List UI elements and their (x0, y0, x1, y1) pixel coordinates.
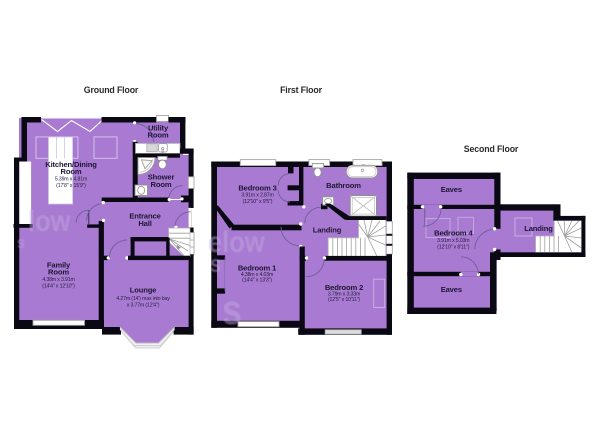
svg-text:Landing: Landing (524, 224, 553, 233)
svg-text:Hall: Hall (138, 219, 151, 228)
svg-text:3.91m x 2.87m: 3.91m x 2.87m (241, 193, 273, 199)
svg-text:Eaves: Eaves (441, 185, 462, 194)
svg-text:low: low (28, 204, 71, 237)
svg-text:Landing: Landing (313, 226, 342, 235)
svg-text:s: s (17, 234, 25, 252)
svg-text:s: s (210, 250, 221, 277)
svg-text:(14'4" x 13'3"): (14'4" x 13'3") (242, 277, 272, 283)
svg-text:Eaves: Eaves (441, 285, 462, 294)
svg-text:s: s (222, 287, 242, 333)
svg-text:Bedroom 3: Bedroom 3 (238, 183, 276, 192)
svg-text:x 3.77m (12'4"): x 3.77m (12'4") (127, 303, 160, 309)
svg-text:Second Floor: Second Floor (464, 144, 519, 154)
svg-text:First Floor: First Floor (280, 85, 323, 95)
svg-text:(17'8" x 15'9"): (17'8" x 15'9") (56, 183, 86, 189)
svg-text:(12'10" x 8'11"): (12'10" x 8'11") (437, 244, 469, 250)
svg-text:Lounge: Lounge (130, 286, 157, 295)
svg-text:Room: Room (151, 180, 172, 189)
svg-text:Room: Room (61, 167, 82, 176)
svg-text:Room: Room (148, 131, 169, 140)
svg-text:4.27m (14') max into bay: 4.27m (14') max into bay (116, 296, 170, 302)
svg-text:Bathroom: Bathroom (326, 181, 361, 190)
svg-text:(14'4" x 12'10"): (14'4" x 12'10") (42, 284, 75, 290)
svg-text:Ground Floor: Ground Floor (84, 85, 139, 95)
svg-text:(12'10" x 9'5"): (12'10" x 9'5") (243, 199, 273, 205)
svg-text:(12'5" x 10'11"): (12'5" x 10'11") (328, 297, 360, 303)
svg-text:5.39m x 4.81m: 5.39m x 4.81m (55, 177, 87, 183)
svg-text:Bedroom 2: Bedroom 2 (325, 283, 363, 292)
svg-text:3.91m x 5.03m: 3.91m x 5.03m (437, 238, 469, 244)
svg-text:Bedroom 4: Bedroom 4 (434, 229, 473, 238)
svg-text:4.38m x 3.91m: 4.38m x 3.91m (42, 277, 74, 283)
svg-text:Room: Room (48, 267, 69, 276)
